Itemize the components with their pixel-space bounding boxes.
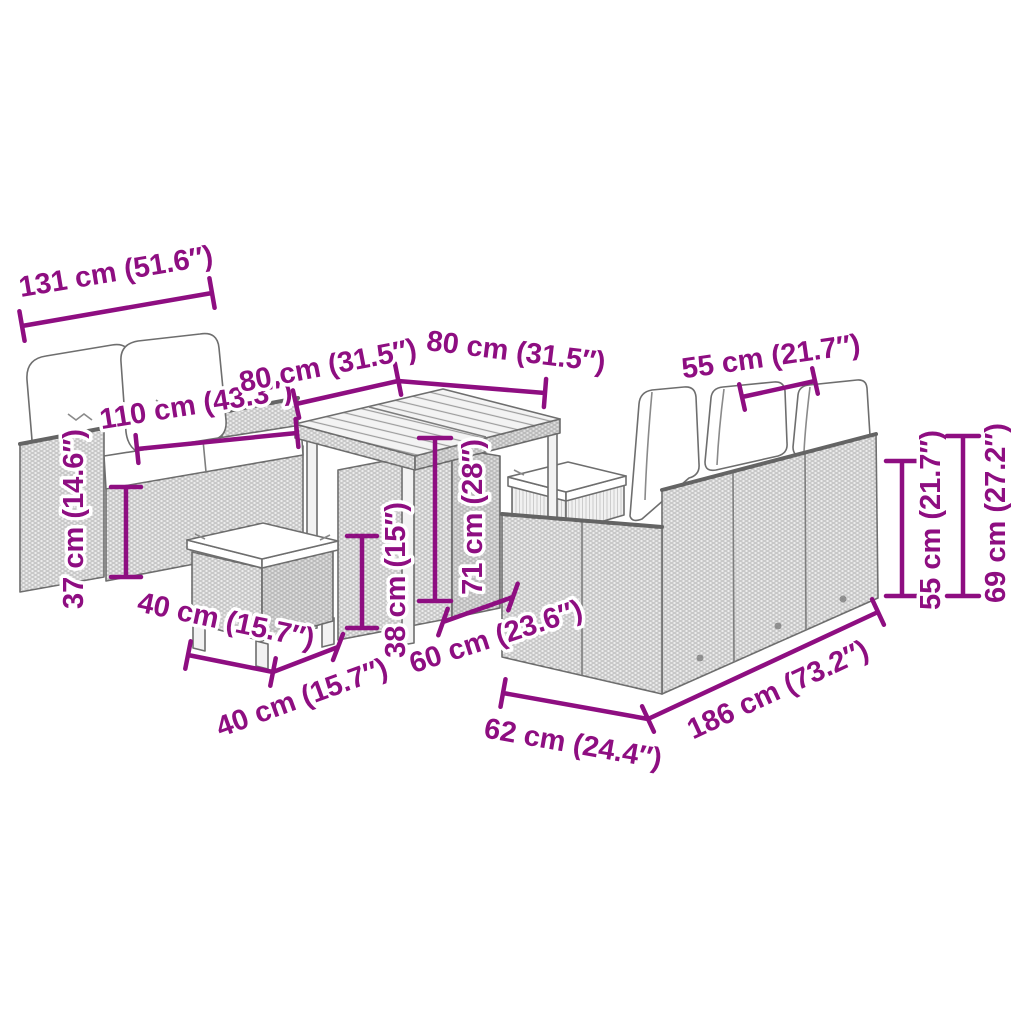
dim-loveseat-seat-height-label: 37 cm (14.6″) [58,429,90,609]
dim-stool-height-label: 38 cm (15″) [380,502,412,658]
sofa-back-seam-1 [733,471,734,662]
dim-sofa-total-height-line [947,436,979,596]
dim-table-width-label: 80 cm (31.5″) [425,325,607,379]
sofa-drain-hole-2 [775,623,782,630]
dim-sofa-back-height-label: 55 cm (21.7″) [915,430,947,610]
dim-sofa-total-height: 69 cm (27.2″) [947,423,1012,603]
dim-loveseat-width-label: 131 cm (51.6″) [17,240,216,304]
dim-sofa-total-height-label: 69 cm (27.2″) [980,423,1012,603]
sofa-drain-hole-3 [840,596,847,603]
sofa-drain-hole-1 [697,655,704,662]
dim-sofa-back-height-line [886,461,918,596]
dim-sofa-depth-label: 62 cm (24.4″) [482,713,665,776]
product-dimension-image: 131 cm (51.6″) 110 cm (43.3″) 37 cm (14.… [0,0,1024,1024]
stool-left-illustration [187,523,338,669]
sofa-back-seam-2 [805,453,806,630]
dim-sofa-cushion-width-label: 55 cm (21.7″) [680,329,863,386]
dim-table-height-label: 71 cm (28″) [457,439,489,595]
dim-sofa-depth: 62 cm (24.4″) [482,679,665,775]
dim-table-length-label: 80 cm (31.5″) [237,333,420,399]
dim-sofa-back-height: 55 cm (21.7″) [886,430,947,610]
dimension-diagram: 131 cm (51.6″) 110 cm (43.3″) 37 cm (14.… [0,0,1024,1024]
dim-loveseat-width: 131 cm (51.6″) [17,240,216,341]
